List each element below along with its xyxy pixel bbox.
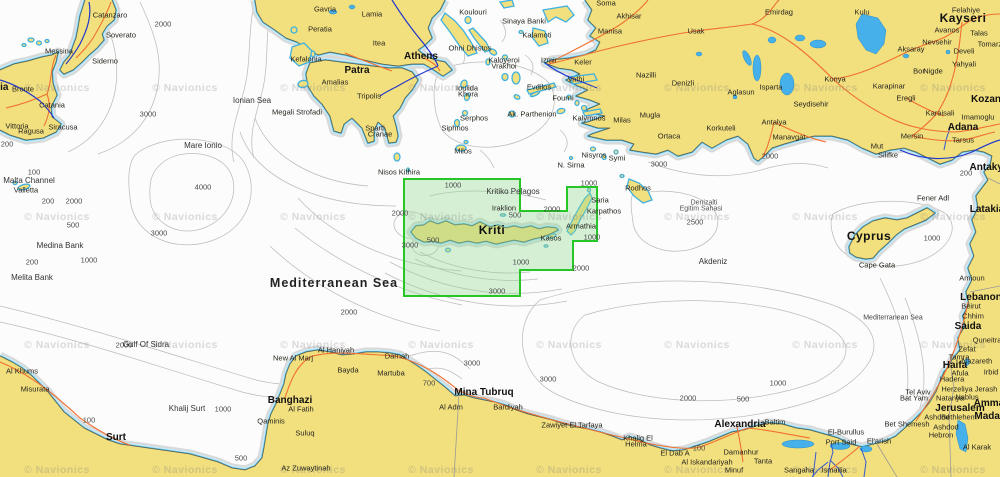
selected-region-overlay[interactable] [404, 179, 597, 296]
nautical-chart-canvas[interactable]: © Navionics© Navionics© Navionics© Navio… [0, 0, 1000, 477]
basemap-svg [0, 0, 1000, 477]
